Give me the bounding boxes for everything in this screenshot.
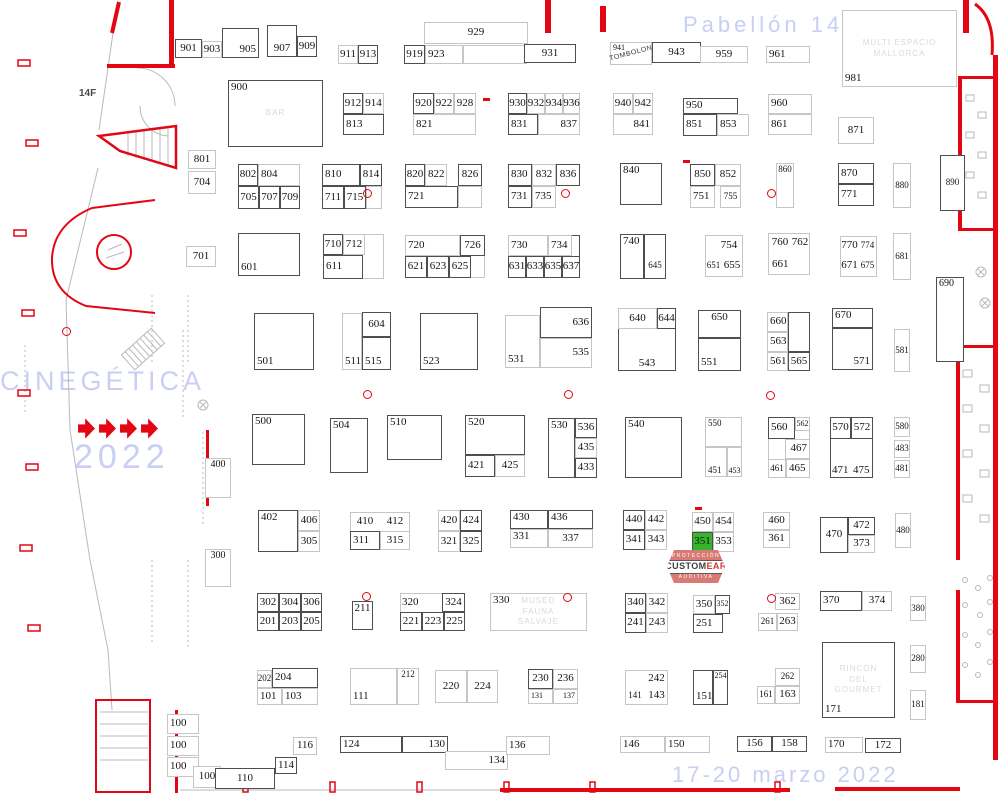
red-circle-marker bbox=[564, 390, 573, 399]
red-circle-marker bbox=[766, 391, 775, 400]
direction-arrow-icon bbox=[99, 417, 116, 440]
red-circle-marker bbox=[767, 189, 776, 198]
customear-logo[interactable]: PROTECCIÓN CUSTOMEAR AUDITIVA bbox=[667, 550, 725, 583]
red-circle-marker bbox=[561, 189, 570, 198]
red-circle-marker bbox=[362, 592, 371, 601]
red-circle-marker bbox=[363, 390, 372, 399]
logo-brand: CUSTOMEAR bbox=[667, 560, 725, 574]
red-circle-marker bbox=[767, 594, 776, 603]
marker-layer bbox=[0, 0, 1000, 797]
logo-brand-red: EAR bbox=[707, 562, 727, 571]
direction-arrow-icon bbox=[78, 417, 95, 440]
direction-arrow-icon bbox=[141, 417, 158, 440]
red-circle-marker bbox=[563, 593, 572, 602]
logo-bottom-text: AUDITIVA bbox=[667, 575, 725, 580]
logo-badge: PROTECCIÓN CUSTOMEAR AUDITIVA bbox=[667, 550, 725, 583]
logo-brand-dark: CUSTOM bbox=[665, 562, 706, 571]
direction-arrow-icon bbox=[120, 417, 137, 440]
floor-plan: Pabellón 14 CINEGÉTICA 2022 17-20 marzo … bbox=[0, 0, 1000, 797]
red-circle-marker bbox=[363, 189, 372, 198]
logo-top-text: PROTECCIÓN bbox=[667, 554, 725, 559]
red-circle-marker bbox=[62, 327, 71, 336]
